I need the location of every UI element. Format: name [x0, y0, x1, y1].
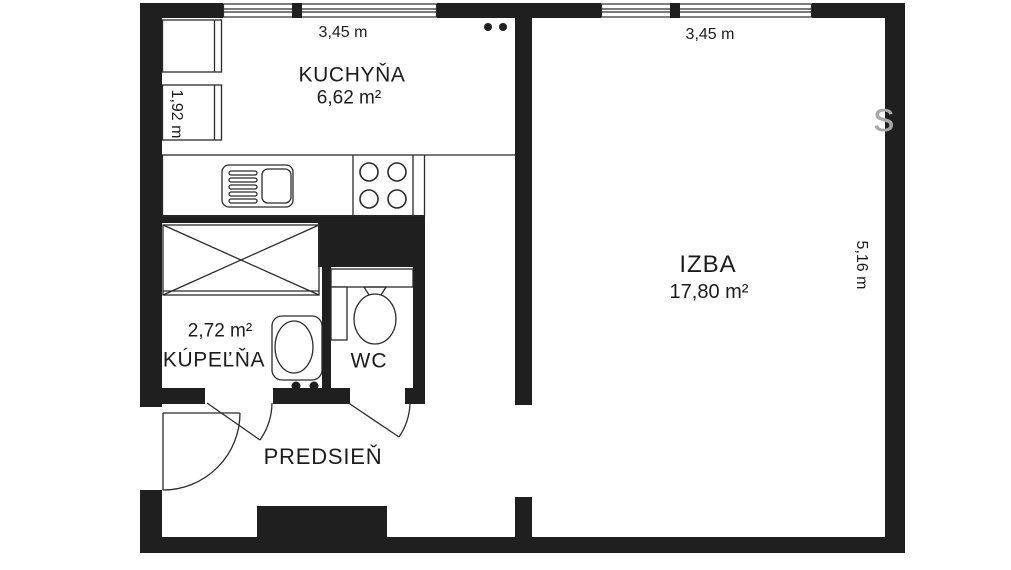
sink-drainer-bar: [229, 192, 257, 196]
stove: [360, 163, 406, 208]
entrance-door-swing-arc: [163, 413, 240, 490]
dimension-izba-depth: 5,16 m: [853, 241, 869, 290]
toilet-bowl: [354, 294, 396, 344]
bathroom-marker-dot: [292, 382, 301, 391]
stove-burner: [360, 190, 378, 208]
stove-burner: [388, 163, 406, 181]
wall-wc-north: [318, 215, 425, 267]
bathtub: [163, 225, 319, 295]
izba-window: [601, 3, 812, 18]
wc-fixtures: [331, 269, 413, 344]
washbasin: [272, 316, 322, 380]
kitchen-tall-cabinet: [163, 20, 222, 72]
sink-drainer-bar: [229, 171, 257, 175]
sink-basin: [262, 169, 291, 203]
wall-bottom: [140, 537, 905, 553]
stove-burner: [388, 190, 406, 208]
kitchen-window-mullion: [292, 3, 302, 18]
bathroom-door-leaf: [207, 403, 260, 440]
wall-left-upper: [140, 3, 162, 407]
watermark-text: s: [874, 93, 895, 141]
room-label-kuchyna: KUCHYŇA: [299, 65, 406, 86]
sink-drainer-bar: [229, 185, 257, 189]
wall-divider-stub: [515, 497, 532, 537]
wc-door: [347, 402, 410, 437]
washbasin-counter: [272, 316, 322, 380]
kitchen-window-gap: [223, 3, 437, 18]
stove-burner: [360, 163, 378, 181]
room-area-kuchyna: 6,62 m²: [317, 89, 381, 108]
wall-hall-north-right: [405, 388, 425, 404]
wall-wc-right: [413, 267, 425, 388]
sink-drainer-bar: [229, 199, 257, 203]
hall-wardrobe-block: [257, 506, 387, 537]
wall-right: [885, 3, 905, 553]
floorplan: 3,45 m KUCHYŇA 6,62 m² 1,92 m 3,45 m IZB…: [0, 0, 1011, 570]
izba-window-mullion: [670, 3, 680, 18]
kitchen-fixtures: [163, 20, 516, 216]
walls: [140, 3, 905, 553]
room-label-izba: IZBA: [679, 253, 736, 277]
room-area-izba: 17,80 m²: [670, 282, 749, 302]
dimension-izba-width: 3,45 m: [686, 27, 735, 43]
room-label-wc: WC: [351, 351, 388, 372]
room-label-predsien: PREDSIEŇ: [264, 446, 383, 468]
izba-window-gap: [601, 3, 812, 18]
dimension-kitchen-depth: 1,92 m: [168, 90, 184, 139]
toilet-cistern-shelf: [331, 269, 413, 287]
wall-hall-north-left: [162, 388, 205, 404]
wc-duct: [331, 287, 347, 340]
kitchen-marker-dot: [499, 23, 507, 31]
room-label-kupelna: KÚPEĽŇA: [163, 350, 265, 371]
kitchen-window: [223, 3, 437, 18]
sink-drainer-bar: [229, 178, 257, 182]
entrance-door: [163, 413, 240, 490]
room-area-kupelna: 2,72 m²: [188, 322, 252, 341]
wc-door-leaf: [347, 402, 399, 437]
wall-bath-wc-divider: [322, 267, 331, 390]
bathroom-door-swing-arc: [260, 403, 272, 440]
kitchen-sink: [222, 165, 293, 207]
wall-hall-north-middle: [273, 388, 350, 404]
kitchen-marker-dot: [484, 23, 492, 31]
wall-divider-upper: [515, 3, 532, 405]
dimension-kitchen-width: 3,45 m: [319, 25, 368, 41]
wc-door-swing-arc: [399, 402, 410, 437]
bathroom-marker-dot: [310, 382, 319, 391]
